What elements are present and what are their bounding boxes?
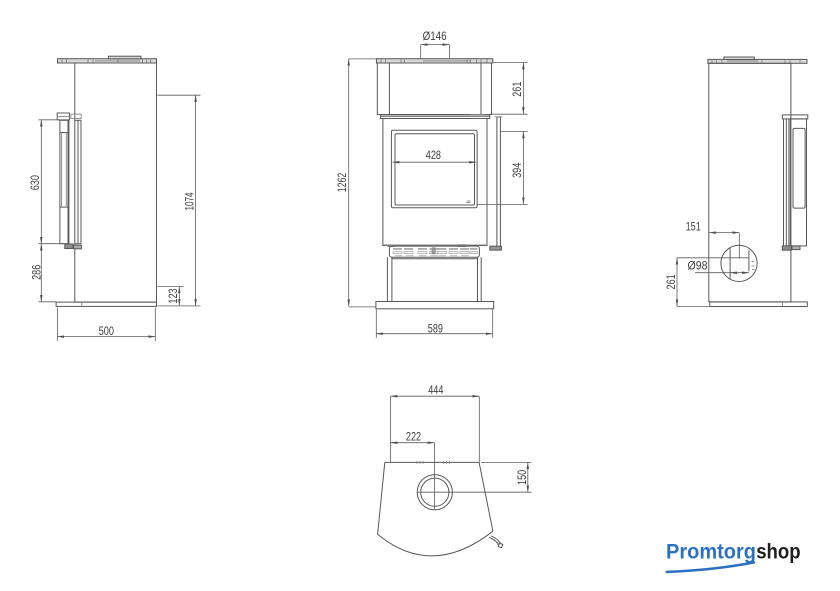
svg-text:Ø98: Ø98 [688, 258, 708, 272]
svg-text:1262: 1262 [335, 173, 349, 193]
svg-text:150: 150 [515, 470, 529, 485]
svg-text:589: 589 [428, 322, 443, 336]
svg-text:500: 500 [99, 324, 114, 338]
svg-text:261: 261 [664, 274, 678, 289]
svg-text:394: 394 [510, 162, 524, 177]
svg-text:286: 286 [30, 264, 44, 279]
svg-text:630: 630 [28, 175, 42, 190]
svg-text:Promtorg: Promtorg [666, 541, 756, 564]
svg-text:151: 151 [686, 219, 701, 233]
svg-text:444: 444 [428, 383, 443, 397]
svg-text:Ø146: Ø146 [423, 29, 447, 43]
svg-text:222: 222 [406, 430, 421, 444]
svg-text:123: 123 [166, 288, 180, 303]
svg-text:1074: 1074 [183, 192, 197, 210]
svg-text:261: 261 [510, 81, 524, 96]
svg-text:428: 428 [426, 148, 441, 162]
svg-text:shop: shop [756, 541, 800, 564]
